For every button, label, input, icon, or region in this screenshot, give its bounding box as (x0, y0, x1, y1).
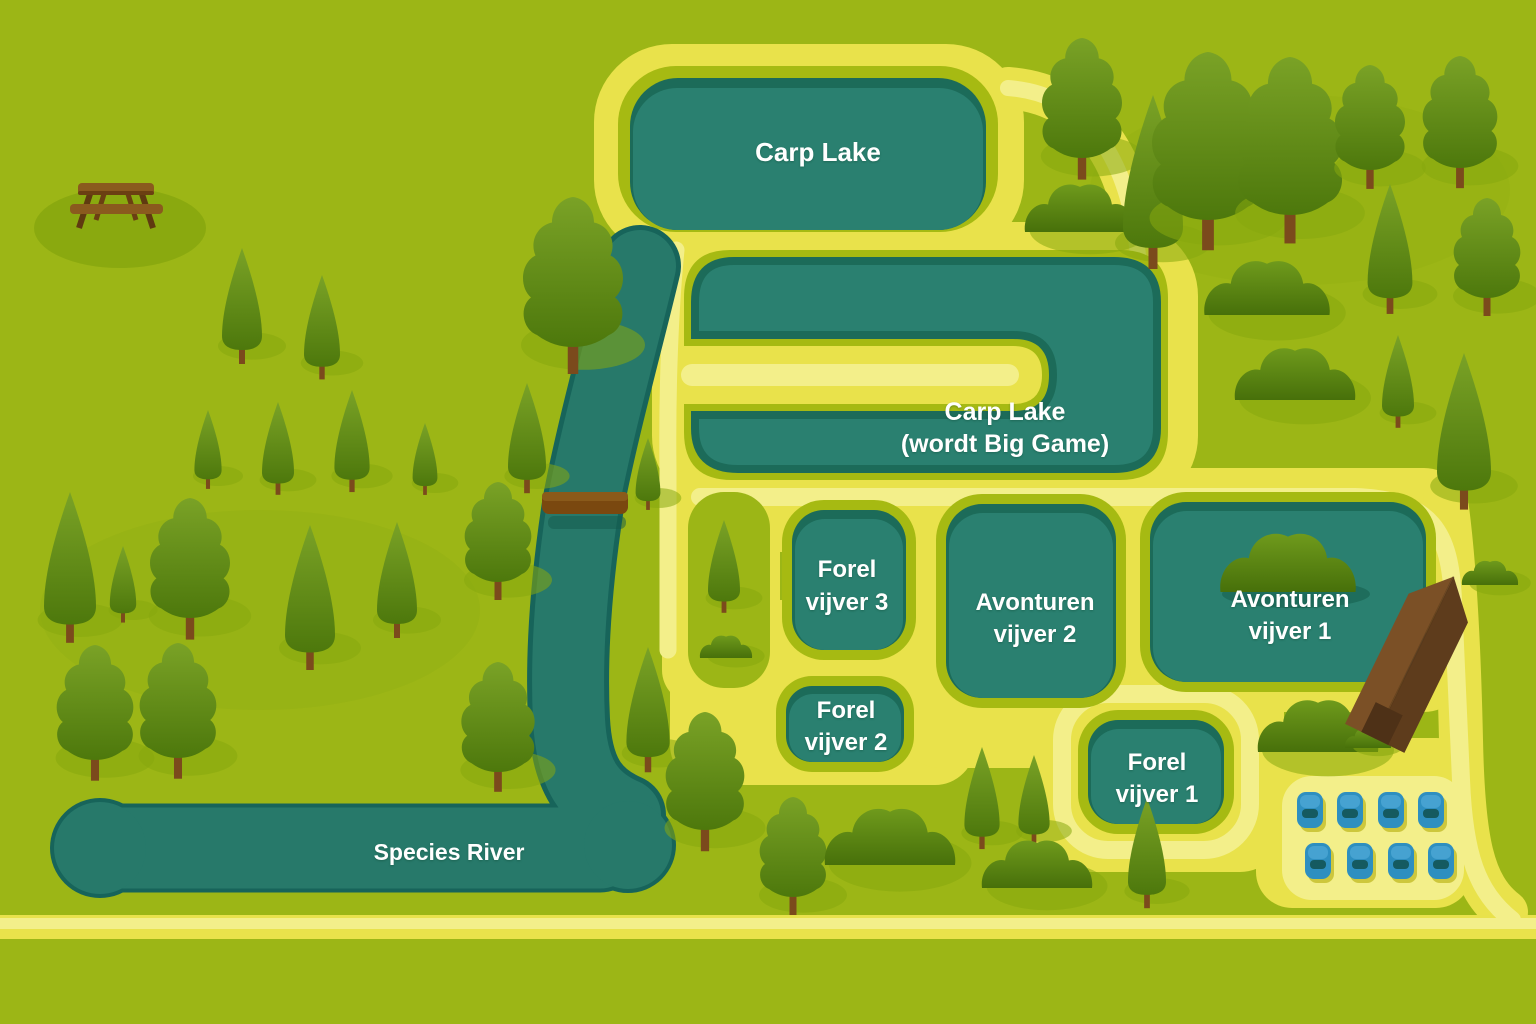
label-forel3-1: Forel (818, 556, 877, 583)
fishing-park-map: Carp Lake Carp Lake (wordt Big Game) For… (0, 0, 1536, 1024)
label-forel1-2: vijver 1 (1116, 781, 1199, 808)
parked-car (1388, 843, 1417, 883)
label-avonturen1-1: Avonturen (1230, 586, 1349, 613)
label-species-river: Species River (374, 839, 525, 865)
forel-vijver-2[interactable] (776, 676, 914, 772)
label-forel2-1: Forel (817, 697, 876, 724)
parked-car (1305, 843, 1334, 883)
parked-car (1418, 792, 1447, 832)
parked-car (1428, 843, 1457, 883)
label-forel2-2: vijver 2 (805, 729, 888, 756)
parked-car (1297, 792, 1326, 832)
label-forel1-1: Forel (1128, 749, 1187, 776)
label-big-game-1: Carp Lake (945, 398, 1066, 426)
label-avonturen2-2: vijver 2 (994, 621, 1077, 648)
parked-car (1378, 792, 1407, 832)
parked-car (1347, 843, 1376, 883)
footbridge (542, 492, 628, 529)
parked-car (1337, 792, 1366, 832)
label-avonturen1-2: vijver 1 (1249, 618, 1332, 645)
label-big-game-2: (wordt Big Game) (901, 430, 1109, 458)
label-forel3-2: vijver 3 (806, 589, 889, 616)
label-avonturen2-1: Avonturen (975, 589, 1094, 616)
label-carp-lake: Carp Lake (755, 137, 881, 167)
